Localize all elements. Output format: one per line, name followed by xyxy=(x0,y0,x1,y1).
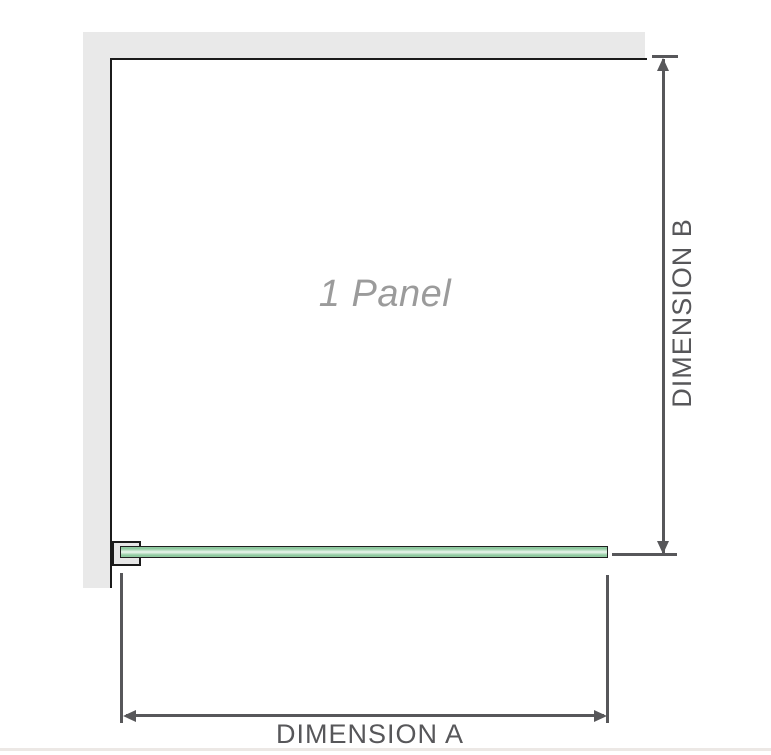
panel-top-edge xyxy=(110,58,647,60)
dimension-a-line xyxy=(126,714,604,717)
panel-label: 1 Panel xyxy=(275,272,495,316)
glass-panel xyxy=(120,546,608,558)
arrow-up-icon xyxy=(657,58,669,71)
panel-dimension-diagram: 1 Panel DIMENSION B DIMENSION A xyxy=(0,0,771,755)
dimension-a-label: DIMENSION A xyxy=(270,719,470,749)
wall-top xyxy=(83,32,645,58)
wall-left xyxy=(83,32,110,588)
arrow-left-icon xyxy=(123,710,136,722)
bottom-divider xyxy=(0,748,771,751)
dimension-b-label: DIMENSION B xyxy=(667,198,697,428)
arrow-right-icon xyxy=(594,710,607,722)
panel-left-edge xyxy=(110,58,112,588)
arrow-down-icon xyxy=(657,541,669,554)
dimension-a-left-extension xyxy=(120,573,123,723)
dimension-a-right-extension xyxy=(606,575,609,723)
dimension-b-line xyxy=(662,59,665,554)
